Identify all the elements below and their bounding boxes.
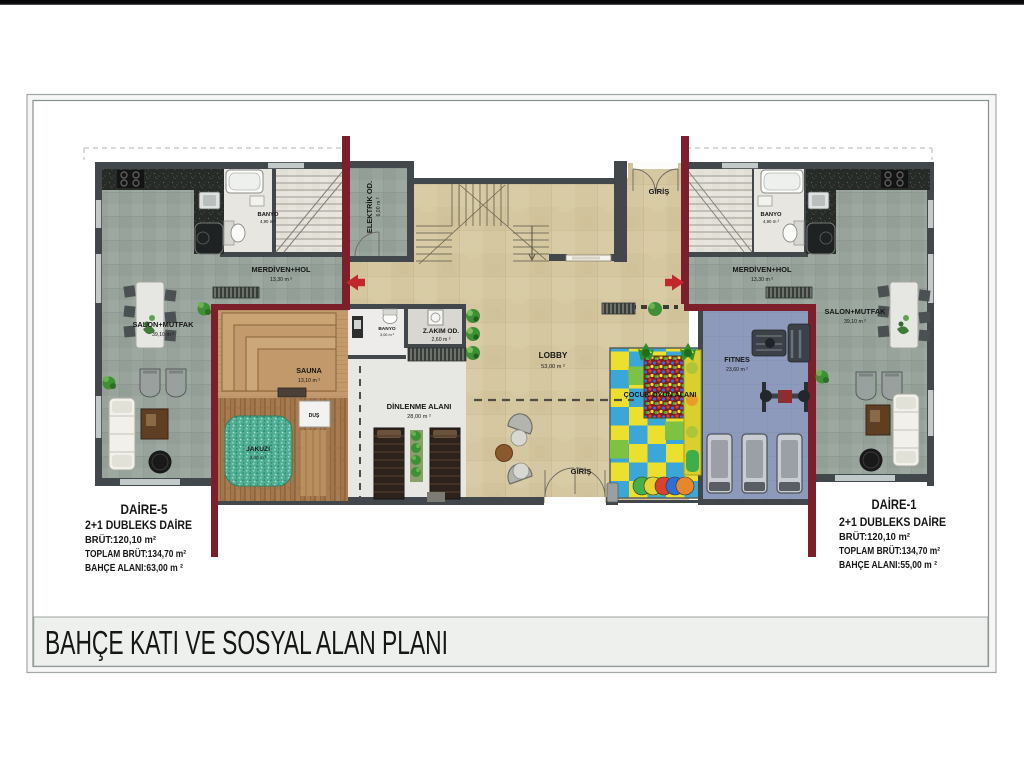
svg-text:13,30 m ²: 13,30 m ² — [270, 277, 292, 283]
svg-text:Z.AKIM OD.: Z.AKIM OD. — [423, 328, 459, 335]
svg-text:MERDİVEN+HOL: MERDİVEN+HOL — [252, 265, 311, 274]
svg-text:3,00 m ²: 3,00 m ² — [380, 333, 395, 337]
svg-text:JAKUZİ: JAKUZİ — [246, 445, 270, 453]
svg-text:BAHÇE ALANI:63,00 m ²: BAHÇE ALANI:63,00 m ² — [85, 562, 183, 574]
svg-text:GİRİŞ: GİRİŞ — [649, 187, 670, 196]
svg-text:39,10 m ²: 39,10 m ² — [844, 319, 866, 325]
svg-text:MERDİVEN+HOL: MERDİVEN+HOL — [733, 265, 792, 274]
svg-text:28,00 m ²: 28,00 m ² — [407, 414, 431, 420]
svg-text:53,00 m ²: 53,00 m ² — [541, 364, 565, 370]
svg-text:2+1 DUBLEKS DAİRE: 2+1 DUBLEKS DAİRE — [85, 517, 192, 532]
svg-text:2,60 m ²: 2,60 m ² — [431, 337, 450, 343]
svg-text:BAHÇE ALANI:55,00 m ²: BAHÇE ALANI:55,00 m ² — [839, 559, 937, 571]
svg-text:39,10 m ²: 39,10 m ² — [152, 332, 174, 338]
svg-text:BANYO: BANYO — [258, 212, 279, 218]
svg-text:FITNES: FITNES — [724, 355, 750, 364]
svg-text:LOBBY: LOBBY — [539, 351, 568, 360]
svg-text:4,90 m ²: 4,90 m ² — [763, 219, 780, 224]
svg-text:13,30 m ²: 13,30 m ² — [751, 277, 773, 283]
svg-text:SAUNA: SAUNA — [296, 366, 322, 375]
svg-text:ELEKTRİK OD.: ELEKTRİK OD. — [365, 181, 374, 233]
svg-text:13,10 m ²: 13,10 m ² — [298, 378, 320, 384]
svg-text:6,00 m ²: 6,00 m ² — [376, 197, 382, 216]
svg-text:DUŞ: DUŞ — [309, 413, 320, 419]
svg-text:SALON+MUTFAK: SALON+MUTFAK — [133, 320, 195, 329]
svg-text:GİRİŞ: GİRİŞ — [571, 467, 592, 476]
svg-text:4,00 m ²: 4,00 m ² — [250, 455, 267, 460]
svg-text:23,60 m ²: 23,60 m ² — [726, 367, 748, 373]
svg-text:DAİRE-1: DAİRE-1 — [872, 496, 917, 512]
svg-text:SALON+MUTFAK: SALON+MUTFAK — [825, 307, 887, 316]
svg-text:TOPLAM BRÜT:134,70 m²: TOPLAM BRÜT:134,70 m² — [85, 547, 186, 560]
svg-text:BRÜT:120,10 m²: BRÜT:120,10 m² — [85, 533, 156, 546]
svg-text:4,90 m ²: 4,90 m ² — [260, 219, 277, 224]
svg-text:BANYO: BANYO — [761, 212, 782, 218]
svg-text:BANYO: BANYO — [378, 326, 396, 332]
svg-text:BAHÇE KATI VE SOSYAL ALAN PLAN: BAHÇE KATI VE SOSYAL ALAN PLANI — [45, 624, 448, 661]
svg-text:DAİRE-5: DAİRE-5 — [121, 501, 168, 517]
svg-text:BRÜT:120,10 m²: BRÜT:120,10 m² — [839, 530, 910, 543]
svg-text:TOPLAM BRÜT:134,70 m²: TOPLAM BRÜT:134,70 m² — [839, 544, 940, 557]
svg-text:ÇOCUK OYUN ALANI: ÇOCUK OYUN ALANI — [624, 390, 697, 399]
svg-text:DİNLENME ALANI: DİNLENME ALANI — [387, 402, 452, 411]
svg-text:2+1 DUBLEKS DAİRE: 2+1 DUBLEKS DAİRE — [839, 514, 946, 529]
